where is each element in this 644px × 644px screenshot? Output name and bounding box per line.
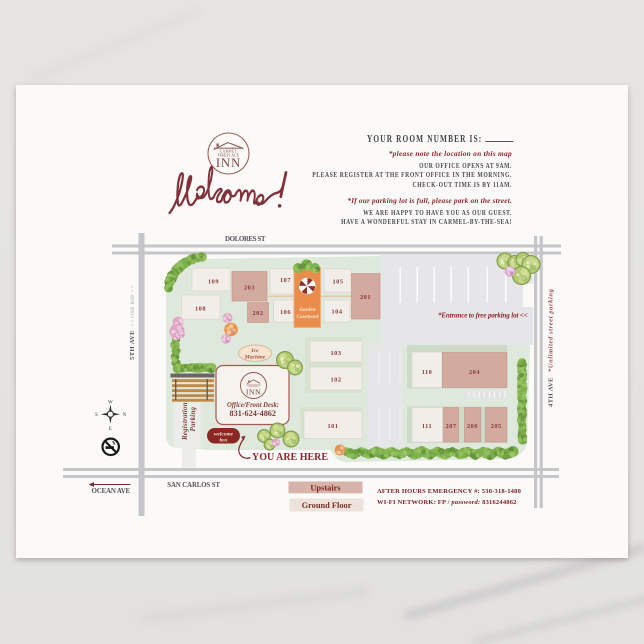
svg-text:box: box	[219, 438, 227, 444]
svg-text:203: 203	[244, 285, 255, 292]
svg-text:106: 106	[280, 309, 291, 316]
svg-text:Courtyard: Courtyard	[297, 314, 319, 320]
svg-text:104: 104	[332, 309, 343, 316]
svg-text:Garden: Garden	[299, 307, 315, 313]
svg-text:101: 101	[328, 423, 339, 430]
svg-text:103: 103	[331, 350, 342, 357]
svg-text:107: 107	[280, 277, 291, 284]
svg-text:YOU ARE HERE: YOU ARE HERE	[252, 451, 328, 463]
svg-text:E: E	[109, 427, 112, 432]
svg-text:108: 108	[195, 306, 206, 313]
svg-text:DOLORES ST: DOLORES ST	[225, 235, 266, 243]
svg-text:4TH AVE: 4TH AVE	[548, 377, 555, 407]
svg-text:OCEAN AVE: OCEAN AVE	[92, 487, 131, 495]
svg-text:*Unlimited street parking: *Unlimited street parking	[548, 288, 555, 372]
svg-text:5TH AVE: 5TH AVE	[129, 330, 136, 360]
svg-text:INN: INN	[216, 156, 241, 170]
svg-text:205: 205	[491, 423, 502, 430]
svg-text:INN: INN	[246, 388, 261, 397]
svg-text:*Entrance to free parking lot: *Entrance to free parking lot <<	[438, 312, 528, 320]
svg-text:109: 109	[208, 279, 219, 286]
svg-text:Machine: Machine	[244, 355, 266, 361]
svg-text:W: W	[108, 400, 113, 405]
svg-text:Registration: Registration	[181, 402, 189, 441]
svg-text:207: 207	[446, 423, 457, 430]
svg-text:Ground Floor: Ground Floor	[302, 501, 352, 510]
svg-text:<< ONE WAY >>: << ONE WAY >>	[130, 285, 136, 327]
svg-text:N: N	[123, 413, 127, 418]
svg-text:202: 202	[253, 310, 264, 317]
svg-text:S: S	[95, 413, 98, 418]
svg-text:SAN CARLOS ST: SAN CARLOS ST	[167, 482, 220, 489]
svg-text:111: 111	[422, 423, 432, 430]
svg-text:Office/Front Desk:: Office/Front Desk:	[227, 400, 279, 409]
svg-text:welcome: welcome	[214, 431, 234, 437]
svg-text:105: 105	[333, 279, 344, 286]
svg-text:102: 102	[331, 377, 342, 384]
svg-text:Parking: Parking	[189, 406, 197, 431]
svg-text:204: 204	[469, 369, 480, 376]
svg-text:Upstairs: Upstairs	[310, 484, 341, 493]
svg-text:110: 110	[422, 369, 433, 376]
svg-text:206: 206	[467, 423, 478, 430]
svg-text:Ice: Ice	[250, 348, 259, 354]
svg-text:201: 201	[360, 294, 371, 301]
svg-text:831-624-4862: 831-624-4862	[230, 409, 277, 418]
